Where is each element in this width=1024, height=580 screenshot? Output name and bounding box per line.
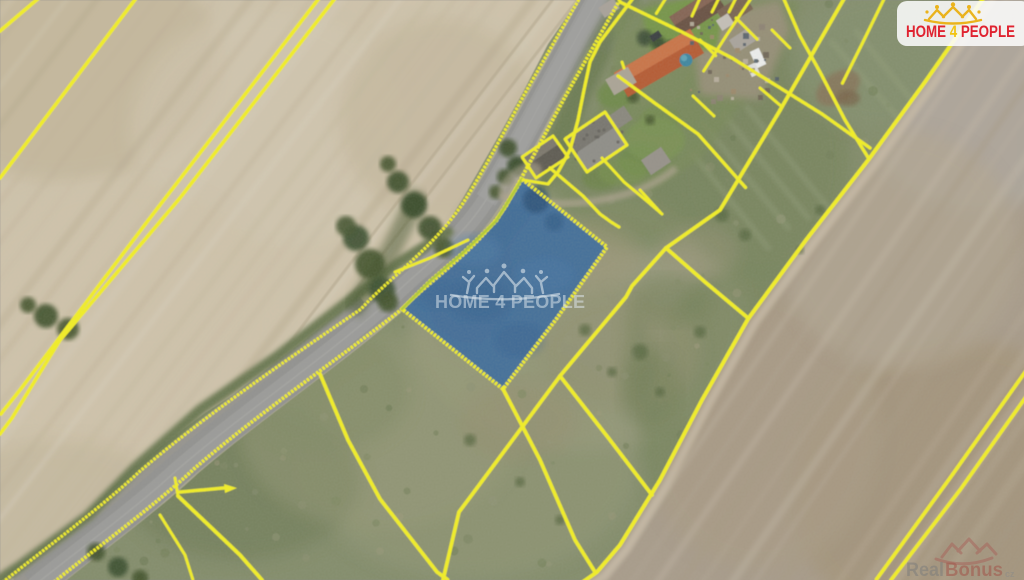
svg-text:cz: cz [1005, 569, 1015, 579]
svg-text:Bonus: Bonus [945, 560, 1003, 580]
svg-text:Real: Real [906, 560, 944, 580]
svg-text:HOME 4 PEOPLE: HOME 4 PEOPLE [906, 22, 1015, 41]
svg-text:HOME 4 PEOPLE: HOME 4 PEOPLE [435, 292, 585, 312]
